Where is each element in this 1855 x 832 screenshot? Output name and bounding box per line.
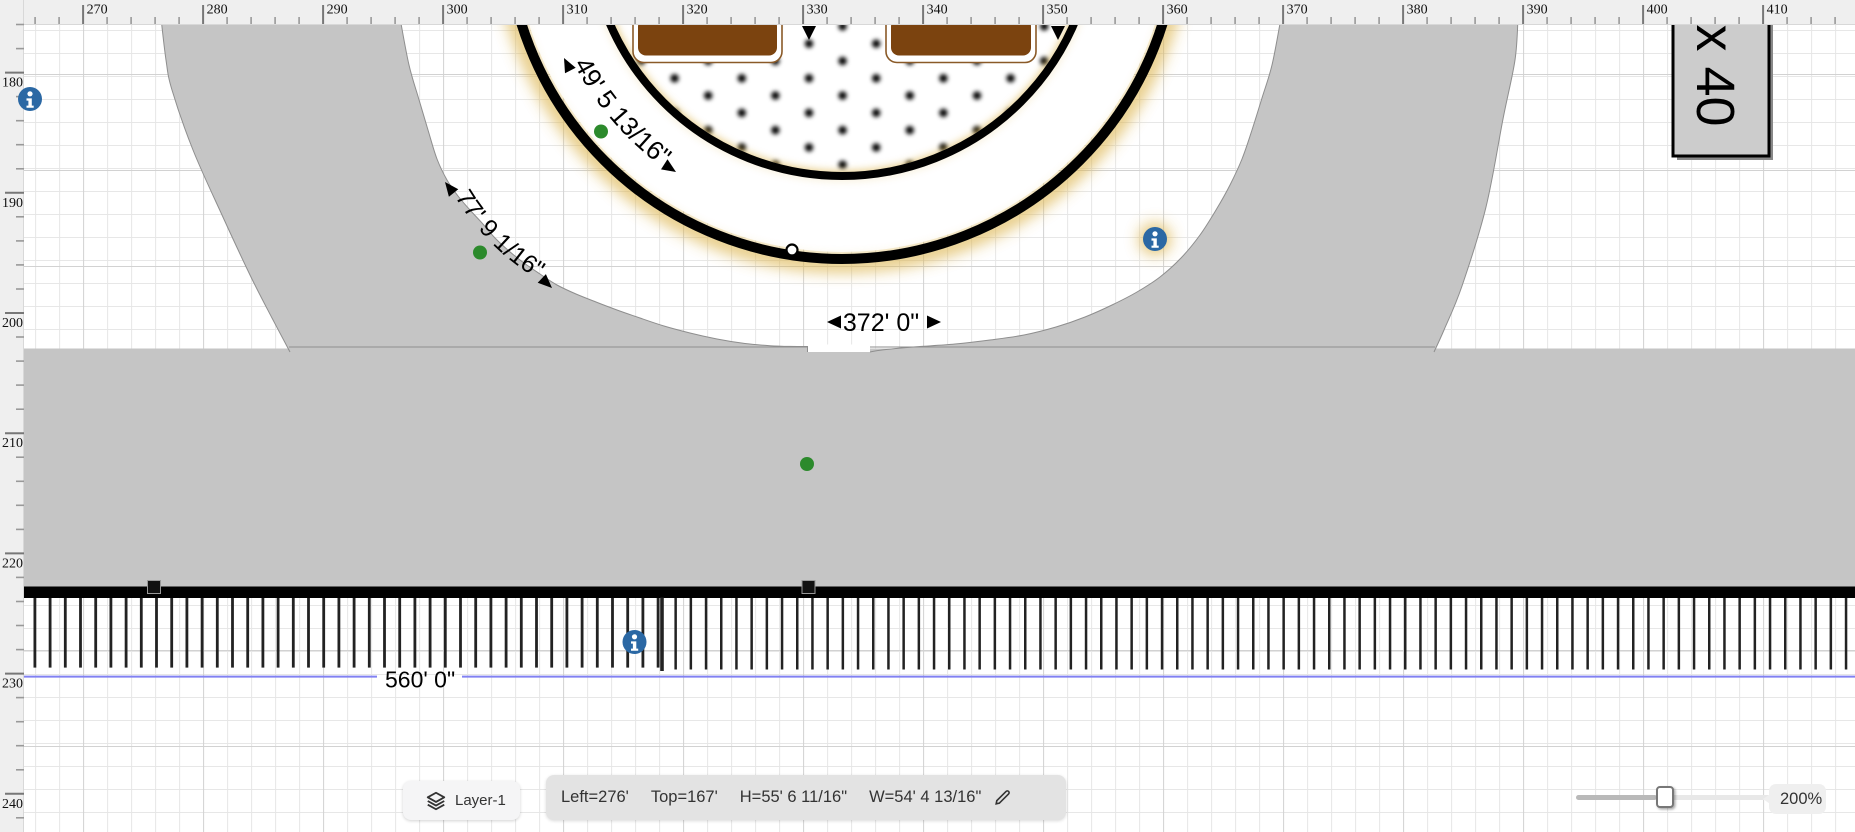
svg-text:210: 210: [2, 436, 23, 451]
svg-text:380: 380: [1407, 3, 1428, 18]
svg-text:400: 400: [1647, 3, 1668, 18]
svg-text:300: 300: [447, 3, 468, 18]
svg-text:200: 200: [2, 316, 23, 331]
svg-text:360: 360: [1167, 3, 1188, 18]
svg-text:390: 390: [1527, 3, 1548, 18]
svg-text:240: 240: [2, 797, 23, 812]
svg-text:x 40: x 40: [1685, 24, 1745, 126]
svg-text:320: 320: [687, 3, 708, 18]
svg-text:410: 410: [1767, 3, 1788, 18]
svg-text:310: 310: [567, 3, 588, 18]
svg-text:350: 350: [1047, 3, 1068, 18]
svg-text:180: 180: [2, 76, 23, 91]
svg-text:560' 0": 560' 0": [385, 667, 455, 693]
svg-text:190: 190: [2, 196, 23, 211]
svg-text:372' 0": 372' 0": [843, 309, 919, 337]
svg-text:280: 280: [207, 3, 228, 18]
svg-text:270: 270: [87, 3, 108, 18]
svg-text:370: 370: [1287, 3, 1308, 18]
svg-text:330: 330: [807, 3, 828, 18]
svg-text:340: 340: [927, 3, 948, 18]
svg-text:220: 220: [2, 556, 23, 571]
svg-text:290: 290: [327, 3, 348, 18]
svg-text:230: 230: [2, 677, 23, 692]
